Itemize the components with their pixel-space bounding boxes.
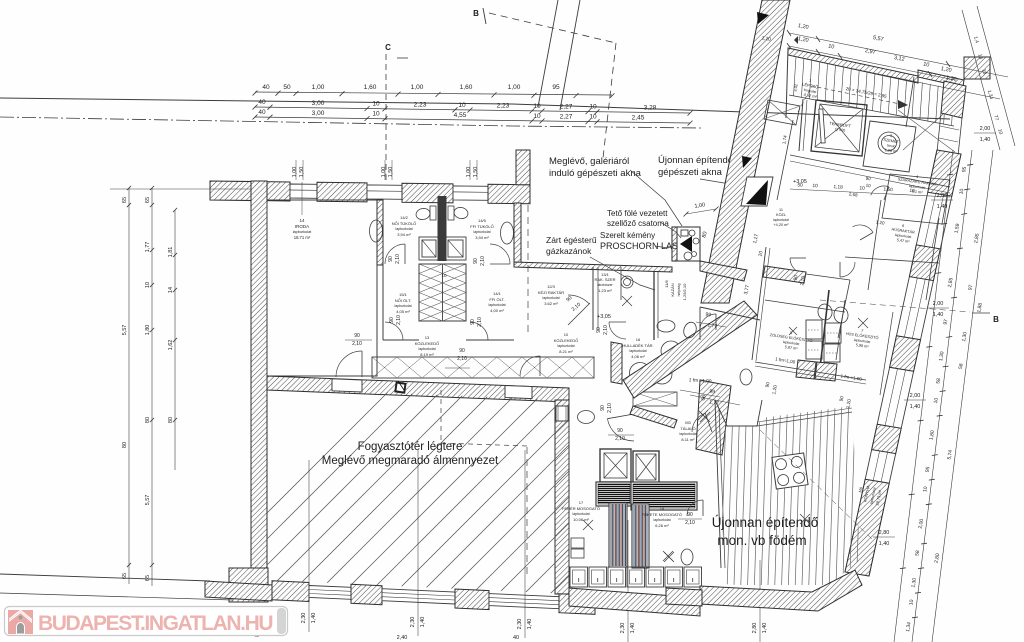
svg-text:10: 10 bbox=[441, 273, 447, 278]
svg-text:+3,05: +3,05 bbox=[793, 179, 807, 185]
svg-text:1,29/2,10: 1,29/2,10 bbox=[682, 283, 687, 300]
svg-text:1,40: 1,40 bbox=[630, 623, 636, 634]
svg-text:90: 90 bbox=[687, 512, 693, 518]
svg-text:1,50: 1,50 bbox=[388, 167, 394, 178]
svg-text:B: B bbox=[993, 315, 999, 324]
svg-text:2,10: 2,10 bbox=[457, 356, 467, 362]
svg-text:gépészeti akna: gépészeti akna bbox=[658, 167, 723, 178]
svg-text:8.21 m²: 8.21 m² bbox=[559, 349, 573, 354]
svg-text:17: 17 bbox=[579, 500, 584, 505]
svg-text:2,45: 2,45 bbox=[632, 114, 645, 121]
svg-text:4,05 m²: 4,05 m² bbox=[396, 309, 410, 314]
svg-text:FFI TÜKÖLŐ: FFI TÜKÖLŐ bbox=[470, 224, 493, 229]
svg-text:8.19 m²: 8.19 m² bbox=[420, 352, 434, 357]
svg-text:10,06 m²: 10,06 m² bbox=[573, 517, 589, 522]
svg-text:NŐI TÜKÖLŐ: NŐI TÜKÖLŐ bbox=[392, 221, 417, 226]
svg-text:Tető fölé vezetett: Tető fölé vezetett bbox=[607, 209, 668, 218]
svg-text:BUDAPEST.INGATLAN.HU: BUDAPEST.INGATLAN.HU bbox=[38, 612, 272, 635]
svg-text:1,77: 1,77 bbox=[145, 242, 151, 253]
svg-text:4,00 m²: 4,00 m² bbox=[490, 308, 504, 313]
svg-text:40: 40 bbox=[513, 635, 519, 641]
svg-text:40: 40 bbox=[258, 109, 266, 116]
svg-text:2,30: 2,30 bbox=[410, 617, 416, 628]
svg-text:lapburkolat: lapburkolat bbox=[293, 230, 313, 234]
svg-text:65: 65 bbox=[145, 197, 151, 203]
svg-text:Újonnan építendő: Újonnan építendő bbox=[658, 155, 733, 166]
svg-text:+3,05: +3,05 bbox=[597, 314, 611, 320]
svg-text:10: 10 bbox=[589, 114, 597, 121]
svg-text:8.11 m²: 8.11 m² bbox=[681, 437, 695, 442]
svg-text:12/3: 12/3 bbox=[547, 284, 556, 289]
svg-text:5,57: 5,57 bbox=[122, 325, 128, 336]
svg-text:4,06 m²: 4,06 m² bbox=[631, 354, 645, 359]
svg-text:Meglévő, galériáról: Meglévő, galériáról bbox=[549, 156, 629, 167]
svg-text:lapburkolat: lapburkolat bbox=[572, 512, 589, 516]
svg-text:1,40: 1,40 bbox=[420, 617, 426, 628]
svg-text:lapburkolat: lapburkolat bbox=[395, 227, 412, 231]
svg-text:C: C bbox=[385, 43, 391, 52]
svg-text:2,10: 2,10 bbox=[396, 315, 402, 325]
svg-text:M3: M3 bbox=[685, 420, 691, 425]
svg-text:90: 90 bbox=[617, 428, 623, 434]
svg-text:2,10: 2,10 bbox=[603, 325, 609, 335]
svg-text:1,80: 1,80 bbox=[145, 325, 151, 336]
svg-text:lapburkolat: lapburkolat bbox=[629, 349, 646, 353]
svg-text:2,30: 2,30 bbox=[517, 619, 523, 630]
svg-text:KÖZL: KÖZL bbox=[776, 213, 786, 217]
svg-text:10: 10 bbox=[589, 104, 597, 111]
svg-text:PROSCHORN LAS: PROSCHORN LAS bbox=[600, 241, 678, 251]
svg-text:2,23: 2,23 bbox=[414, 101, 427, 108]
svg-text:90: 90 bbox=[600, 405, 606, 411]
svg-text:80: 80 bbox=[145, 417, 151, 423]
svg-text:1,81: 1,81 bbox=[168, 247, 174, 258]
svg-text:FEHÉR MOSOGATÓ: FEHÉR MOSOGATÓ bbox=[562, 506, 600, 511]
svg-text:99: 99 bbox=[709, 389, 716, 396]
svg-text:FEKETE MOSOGATÓ: FEKETE MOSOGATÓ bbox=[642, 512, 682, 517]
svg-text:10: 10 bbox=[458, 102, 466, 109]
svg-text:1,50: 1,50 bbox=[883, 187, 893, 194]
svg-text:5,57: 5,57 bbox=[145, 495, 151, 506]
svg-text:65: 65 bbox=[145, 575, 151, 581]
svg-text:90: 90 bbox=[354, 333, 360, 339]
svg-text:2,10: 2,10 bbox=[395, 254, 401, 264]
svg-text:40: 40 bbox=[262, 84, 270, 91]
svg-text:2,10: 2,10 bbox=[477, 317, 483, 327]
svg-text:lapburkolat: lapburkolat bbox=[394, 304, 411, 308]
svg-text:3.62 m²: 3.62 m² bbox=[544, 301, 558, 306]
svg-text:1,00: 1,00 bbox=[381, 167, 387, 178]
svg-text:2,40: 2,40 bbox=[397, 635, 408, 641]
svg-text:KAZÁN: KAZÁN bbox=[670, 283, 675, 296]
svg-text:95: 95 bbox=[552, 84, 560, 91]
svg-text:10: 10 bbox=[533, 103, 541, 110]
svg-text:14/2: 14/2 bbox=[400, 215, 409, 220]
svg-text:2,10: 2,10 bbox=[685, 520, 695, 526]
svg-text:80: 80 bbox=[168, 417, 174, 423]
svg-text:1,40: 1,40 bbox=[311, 613, 317, 624]
svg-text:1,40: 1,40 bbox=[937, 204, 948, 210]
svg-text:1,40: 1,40 bbox=[933, 312, 944, 318]
svg-text:B: B bbox=[473, 9, 479, 18]
svg-text:2,30: 2,30 bbox=[620, 623, 626, 634]
svg-text:1,00: 1,00 bbox=[508, 84, 521, 91]
svg-text:1,60: 1,60 bbox=[460, 84, 473, 91]
svg-text:90: 90 bbox=[596, 327, 602, 333]
svg-text:10: 10 bbox=[372, 111, 380, 118]
svg-text:2,10: 2,10 bbox=[352, 341, 362, 347]
svg-text:helyiség: helyiség bbox=[677, 284, 681, 297]
svg-text:18: 18 bbox=[660, 506, 665, 511]
svg-text:10: 10 bbox=[564, 332, 569, 337]
svg-text:10: 10 bbox=[923, 61, 930, 68]
svg-text:Újonnan építendő: Újonnan építendő bbox=[712, 515, 819, 530]
svg-text:4,55: 4,55 bbox=[454, 112, 467, 119]
svg-text:90: 90 bbox=[470, 319, 476, 325]
svg-text:lapburkolat: lapburkolat bbox=[773, 218, 789, 222]
svg-text:3,00: 3,00 bbox=[312, 110, 325, 117]
svg-text:1,23 m²: 1,23 m² bbox=[598, 288, 612, 293]
svg-text:lapburkolat: lapburkolat bbox=[488, 303, 505, 307]
svg-text:80: 80 bbox=[122, 442, 128, 448]
svg-text:40: 40 bbox=[258, 99, 266, 106]
svg-text:lapburkolat: lapburkolat bbox=[679, 432, 696, 436]
svg-text:6,26 m²: 6,26 m² bbox=[655, 523, 669, 528]
svg-text:50: 50 bbox=[283, 84, 291, 91]
svg-text:2,10: 2,10 bbox=[607, 403, 613, 413]
svg-text:KÖZLEKEDŐ: KÖZLEKEDŐ bbox=[554, 338, 578, 343]
svg-text:szellőző csatorna: szellőző csatorna bbox=[607, 219, 669, 228]
svg-text:induló gépészeti akna: induló gépészeti akna bbox=[549, 168, 642, 179]
svg-text:11/6: 11/6 bbox=[664, 279, 669, 287]
svg-text:KÖZLEKEDŐ: KÖZLEKEDŐ bbox=[415, 341, 439, 346]
svg-text:RAK. SZER: RAK. SZER bbox=[594, 277, 615, 282]
svg-text:16: 16 bbox=[636, 337, 641, 342]
svg-text:Meglévő megmaradó álmennyezet: Meglévő megmaradó álmennyezet bbox=[322, 455, 499, 467]
svg-text:Zárt égésterű: Zárt égésterű bbox=[546, 235, 597, 245]
svg-text:Fogyasztótér légtere: Fogyasztótér légtere bbox=[358, 441, 463, 453]
svg-text:15/1: 15/1 bbox=[399, 292, 408, 297]
svg-text:1,40: 1,40 bbox=[527, 619, 533, 630]
svg-text:1,00: 1,00 bbox=[411, 84, 424, 91]
svg-text:11: 11 bbox=[779, 208, 783, 212]
svg-text:2,00: 2,00 bbox=[937, 193, 948, 199]
svg-text:2,23: 2,23 bbox=[497, 103, 510, 110]
svg-text:90: 90 bbox=[388, 256, 394, 262]
svg-text:+4,20 m²: +4,20 m² bbox=[773, 223, 789, 227]
svg-text:18.71 m²: 18.71 m² bbox=[294, 235, 311, 240]
svg-text:2,00: 2,00 bbox=[910, 393, 921, 399]
svg-text:1,62: 1,62 bbox=[168, 340, 174, 351]
svg-text:1,00: 1,00 bbox=[292, 167, 298, 178]
svg-text:10: 10 bbox=[828, 43, 835, 50]
svg-text:2,30: 2,30 bbox=[301, 613, 307, 624]
svg-text:lapburkolat: lapburkolat bbox=[418, 347, 435, 351]
svg-text:10: 10 bbox=[812, 183, 818, 189]
svg-text:1,40: 1,40 bbox=[910, 404, 921, 410]
svg-text:10: 10 bbox=[372, 101, 380, 108]
svg-text:1,50: 1,50 bbox=[473, 167, 479, 178]
svg-text:KÉZI RAKTÁR: KÉZI RAKTÁR bbox=[538, 290, 564, 295]
svg-text:14/5: 14/5 bbox=[478, 218, 487, 223]
svg-text:2,80: 2,80 bbox=[879, 530, 890, 536]
svg-text:2,27: 2,27 bbox=[560, 113, 573, 120]
svg-text:13: 13 bbox=[425, 335, 430, 340]
svg-text:10: 10 bbox=[533, 113, 541, 120]
svg-text:90: 90 bbox=[473, 258, 479, 264]
svg-text:1,00: 1,00 bbox=[312, 84, 325, 91]
svg-text:lapburkolat: lapburkolat bbox=[653, 518, 670, 522]
svg-text:2,80: 2,80 bbox=[752, 623, 758, 634]
svg-text:3,00: 3,00 bbox=[312, 100, 325, 107]
svg-text:90: 90 bbox=[459, 348, 465, 354]
svg-text:2,10: 2,10 bbox=[480, 256, 486, 266]
svg-text:mon. vb födém: mon. vb födém bbox=[717, 533, 806, 548]
svg-text:3,28: 3,28 bbox=[644, 105, 657, 112]
svg-text:2,00: 2,00 bbox=[933, 301, 944, 307]
svg-text:3,94 m²: 3,94 m² bbox=[397, 232, 411, 237]
svg-text:Szerelt kémény: Szerelt kémény bbox=[600, 231, 655, 240]
svg-text:FFI ÖLT.: FFI ÖLT. bbox=[489, 297, 504, 302]
svg-text:2,00: 2,00 bbox=[980, 126, 991, 132]
svg-text:lapburkolat: lapburkolat bbox=[473, 230, 490, 234]
svg-text:1,40: 1,40 bbox=[762, 623, 768, 634]
svg-text:2,10: 2,10 bbox=[615, 436, 625, 442]
svg-text:IRODA: IRODA bbox=[295, 224, 309, 229]
svg-text:14: 14 bbox=[299, 218, 305, 223]
svg-text:90: 90 bbox=[389, 317, 395, 323]
svg-text:TÁLALÓ: TÁLALÓ bbox=[680, 426, 695, 431]
svg-text:1,40: 1,40 bbox=[980, 137, 991, 143]
svg-text:1,00: 1,00 bbox=[466, 167, 472, 178]
svg-text:lapburkolat: lapburkolat bbox=[557, 344, 574, 348]
svg-text:14: 14 bbox=[168, 287, 174, 293]
svg-text:1,60: 1,60 bbox=[364, 84, 377, 91]
svg-text:10: 10 bbox=[859, 185, 865, 191]
svg-text:tárolószer: tárolószer bbox=[597, 283, 613, 287]
svg-text:2,27: 2,27 bbox=[560, 103, 573, 110]
svg-text:10: 10 bbox=[909, 188, 915, 194]
svg-text:3,94 m²: 3,94 m² bbox=[475, 235, 489, 240]
svg-text:1,18: 1,18 bbox=[833, 184, 843, 191]
svg-text:1,50: 1,50 bbox=[299, 167, 305, 178]
svg-text:HULLADÉK TÁR.: HULLADÉK TÁR. bbox=[622, 343, 653, 348]
svg-text:1,40: 1,40 bbox=[879, 541, 890, 547]
svg-text:gázkazánok: gázkazánok bbox=[546, 246, 592, 256]
svg-text:10: 10 bbox=[145, 282, 151, 288]
svg-text:lapburkolat: lapburkolat bbox=[542, 296, 559, 300]
svg-text:14/1: 14/1 bbox=[493, 291, 502, 296]
svg-text:NŐI ÖLT.: NŐI ÖLT. bbox=[395, 298, 411, 303]
svg-text:65: 65 bbox=[122, 197, 128, 203]
